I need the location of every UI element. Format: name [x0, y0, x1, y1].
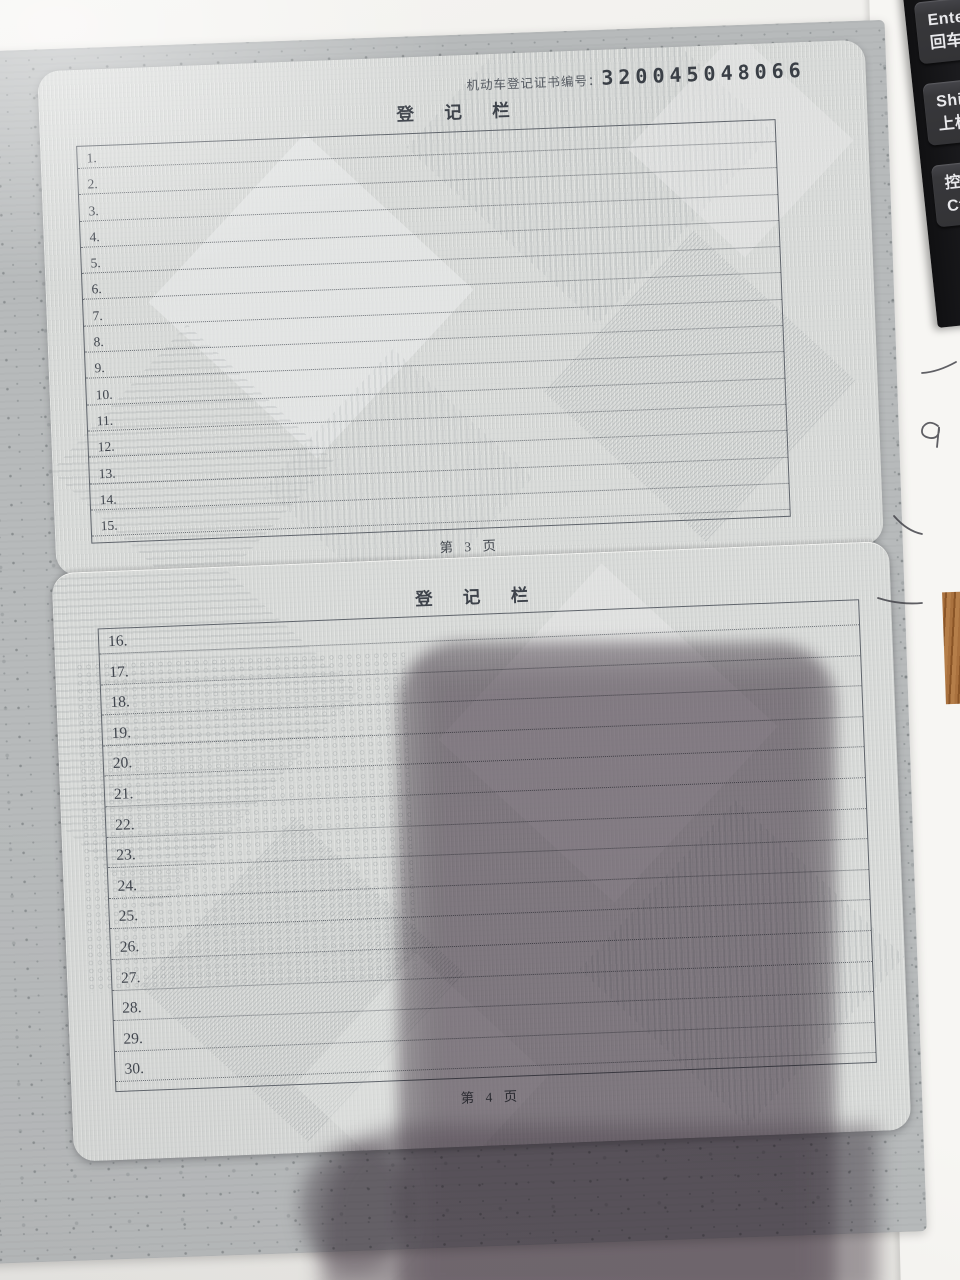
row-number: 24. — [117, 877, 137, 896]
row-number: 19. — [111, 724, 131, 743]
row-number: 12. — [97, 439, 114, 456]
row-number: 17. — [109, 663, 129, 682]
keyboard-key: 控制Ctrl — [931, 150, 960, 227]
row-number: 28. — [122, 999, 142, 1018]
row-number: 22. — [115, 816, 135, 835]
key-label-line1: Enter — [927, 0, 960, 32]
keyboard-key: Enter回车 — [914, 0, 960, 64]
row-number: 23. — [116, 846, 136, 865]
photo-frame: 机动车登记证书编号：320045048066 登 记 栏 1.2.3.4.5.6… — [0, 0, 960, 1280]
row-number: 5. — [90, 255, 101, 271]
row-number: 18. — [110, 693, 130, 712]
row-number: 26. — [120, 938, 140, 957]
row-number: 10. — [95, 386, 112, 403]
row-number: 20. — [113, 755, 133, 774]
row-number: 15. — [100, 518, 117, 535]
key-label-line1: 控制 — [944, 158, 960, 195]
registration-table: 16.17.18.19.20.21.22.23.24.25.26.27.28.2… — [98, 599, 877, 1092]
row-number: 3. — [88, 203, 99, 219]
certificate-page-4: 登 记 栏 16.17.18.19.20.21.22.23.24.25.26.2… — [51, 541, 911, 1162]
serial-label: 机动车登记证书编号： — [466, 74, 601, 93]
row-number: 21. — [114, 785, 134, 804]
handwriting-marks — [870, 330, 960, 640]
row-number: 16. — [108, 632, 128, 651]
certificate-page-3: 机动车登记证书编号：320045048066 登 记 栏 1.2.3.4.5.6… — [37, 40, 884, 576]
row-number: 2. — [87, 176, 98, 192]
key-label-line1: Shift — [935, 77, 960, 114]
row-number: 1. — [86, 150, 97, 166]
row-number: 13. — [98, 465, 115, 482]
row-number: 4. — [89, 229, 100, 245]
row-number: 9. — [94, 360, 105, 376]
row-number: 27. — [121, 969, 141, 988]
row-number: 7. — [92, 308, 103, 324]
registration-table: 1.2.3.4.5.6.7.8.9.10.11.12.13.14.15. — [76, 119, 791, 544]
keyboard-key: Shift上档 — [922, 69, 960, 146]
row-number: 14. — [99, 492, 116, 509]
row-number: 6. — [91, 282, 102, 298]
row-number: 29. — [123, 1030, 143, 1049]
certificate-sheet: 机动车登记证书编号：320045048066 登 记 栏 1.2.3.4.5.6… — [37, 39, 911, 1170]
row-number: 25. — [118, 907, 138, 926]
row-number: 30. — [124, 1060, 144, 1079]
serial-number: 320045048066 — [601, 58, 806, 90]
row-number: 11. — [96, 413, 113, 430]
row-number: 8. — [93, 334, 104, 350]
